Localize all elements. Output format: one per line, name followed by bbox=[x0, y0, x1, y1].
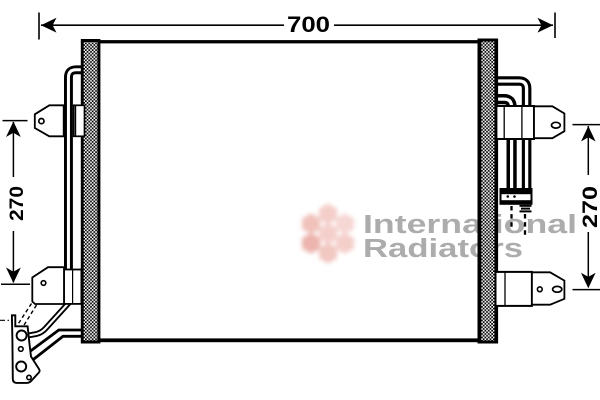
svg-text:270: 270 bbox=[579, 186, 600, 228]
svg-text:Radiators: Radiators bbox=[363, 235, 523, 263]
svg-text:700: 700 bbox=[287, 12, 330, 37]
svg-text:270: 270 bbox=[7, 186, 28, 221]
